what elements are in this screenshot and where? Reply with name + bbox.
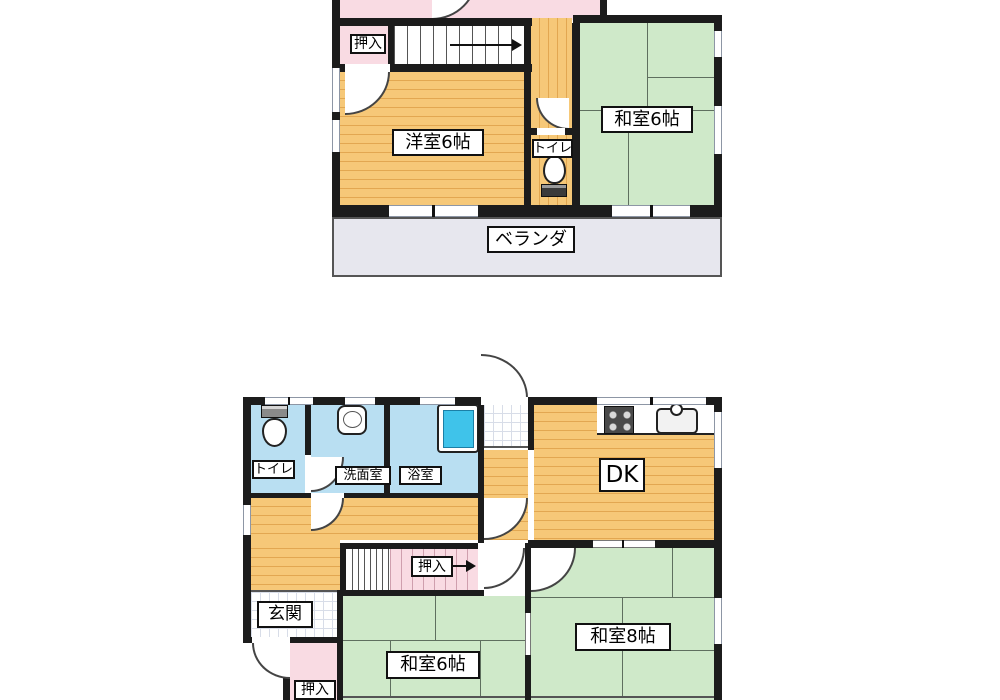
arrow-right-icon bbox=[512, 39, 522, 51]
stove-icon bbox=[604, 406, 634, 434]
wall bbox=[528, 397, 534, 450]
hallway-left bbox=[251, 540, 340, 590]
wall bbox=[340, 543, 346, 596]
room-label-japanese-6: 和室6帖 bbox=[386, 651, 480, 679]
window bbox=[345, 397, 375, 405]
room-label-western-room: 洋室6帖 bbox=[392, 129, 484, 156]
room-label-toilet: トイレ bbox=[252, 460, 295, 479]
bathtub-water bbox=[443, 410, 474, 448]
window bbox=[332, 68, 340, 112]
hallway bbox=[251, 498, 478, 540]
room-label-washroom: 洗面室 bbox=[335, 466, 391, 485]
window-divider bbox=[432, 205, 435, 217]
wall bbox=[345, 543, 478, 549]
sink-bowl bbox=[343, 411, 362, 428]
door-opening bbox=[311, 493, 344, 498]
window-divider bbox=[650, 205, 653, 217]
room-label-genkan: 玄関 bbox=[257, 601, 313, 628]
room-label-veranda: ベランダ bbox=[487, 226, 575, 253]
window bbox=[714, 412, 722, 468]
arrow-right-icon bbox=[466, 560, 476, 572]
window bbox=[332, 120, 340, 152]
toilet-cistern-icon bbox=[261, 405, 288, 418]
room-label-dk: DK bbox=[599, 458, 645, 492]
tatami-line bbox=[672, 548, 673, 598]
door-opening bbox=[305, 455, 311, 493]
room-label-toilet: トイレ bbox=[532, 139, 573, 158]
room-label-japanese-8: 和室8帖 bbox=[575, 623, 671, 651]
tatami-line bbox=[480, 640, 481, 697]
door-opening bbox=[252, 637, 290, 643]
wall bbox=[524, 26, 531, 205]
window bbox=[714, 31, 722, 57]
upper-closet-room-top bbox=[340, 0, 602, 20]
backdoor-vestibule bbox=[484, 404, 528, 448]
japanese-room-6 bbox=[343, 596, 525, 700]
wall bbox=[332, 18, 532, 26]
toilet-icon bbox=[543, 155, 566, 184]
room-label-oshiire: 押入 bbox=[350, 34, 386, 54]
sliding-door-opening bbox=[593, 540, 655, 548]
wall bbox=[337, 596, 343, 700]
door-opening bbox=[345, 64, 390, 72]
window bbox=[243, 505, 251, 535]
lower-staircase bbox=[352, 549, 390, 590]
vestibule-edge bbox=[484, 446, 528, 448]
toilet-tank-icon bbox=[541, 184, 567, 197]
sliding-door-divider bbox=[622, 540, 624, 548]
window-divider bbox=[650, 397, 653, 405]
tatami-line bbox=[647, 23, 648, 110]
wall bbox=[478, 404, 484, 543]
room-label-stair-closet: 押入 bbox=[411, 556, 453, 577]
tatami-line bbox=[435, 596, 436, 640]
wall bbox=[243, 493, 484, 498]
tatami-line bbox=[647, 77, 714, 78]
floor-plan: 押入 洋室6帖 和室6帖 トイレ ベランダ bbox=[0, 0, 1000, 700]
arrow-right-icon bbox=[450, 44, 512, 46]
window bbox=[714, 598, 722, 644]
room-label-japanese-room: 和室6帖 bbox=[601, 106, 693, 133]
entry-door-swing bbox=[252, 643, 290, 679]
wall bbox=[573, 15, 722, 23]
wall bbox=[388, 26, 394, 64]
sliding-door-opening bbox=[525, 613, 531, 655]
room-label-entry-closet: 押入 bbox=[294, 680, 336, 700]
window-divider bbox=[288, 397, 290, 405]
window bbox=[714, 106, 722, 154]
wall bbox=[337, 590, 484, 596]
door-opening bbox=[537, 128, 565, 135]
room-label-bathroom: 浴室 bbox=[399, 466, 442, 485]
wall bbox=[572, 23, 580, 205]
window bbox=[420, 397, 455, 405]
backdoor-swing bbox=[481, 354, 528, 398]
tatami-line bbox=[343, 640, 525, 641]
door-opening bbox=[481, 397, 528, 405]
step-edge bbox=[251, 590, 340, 592]
